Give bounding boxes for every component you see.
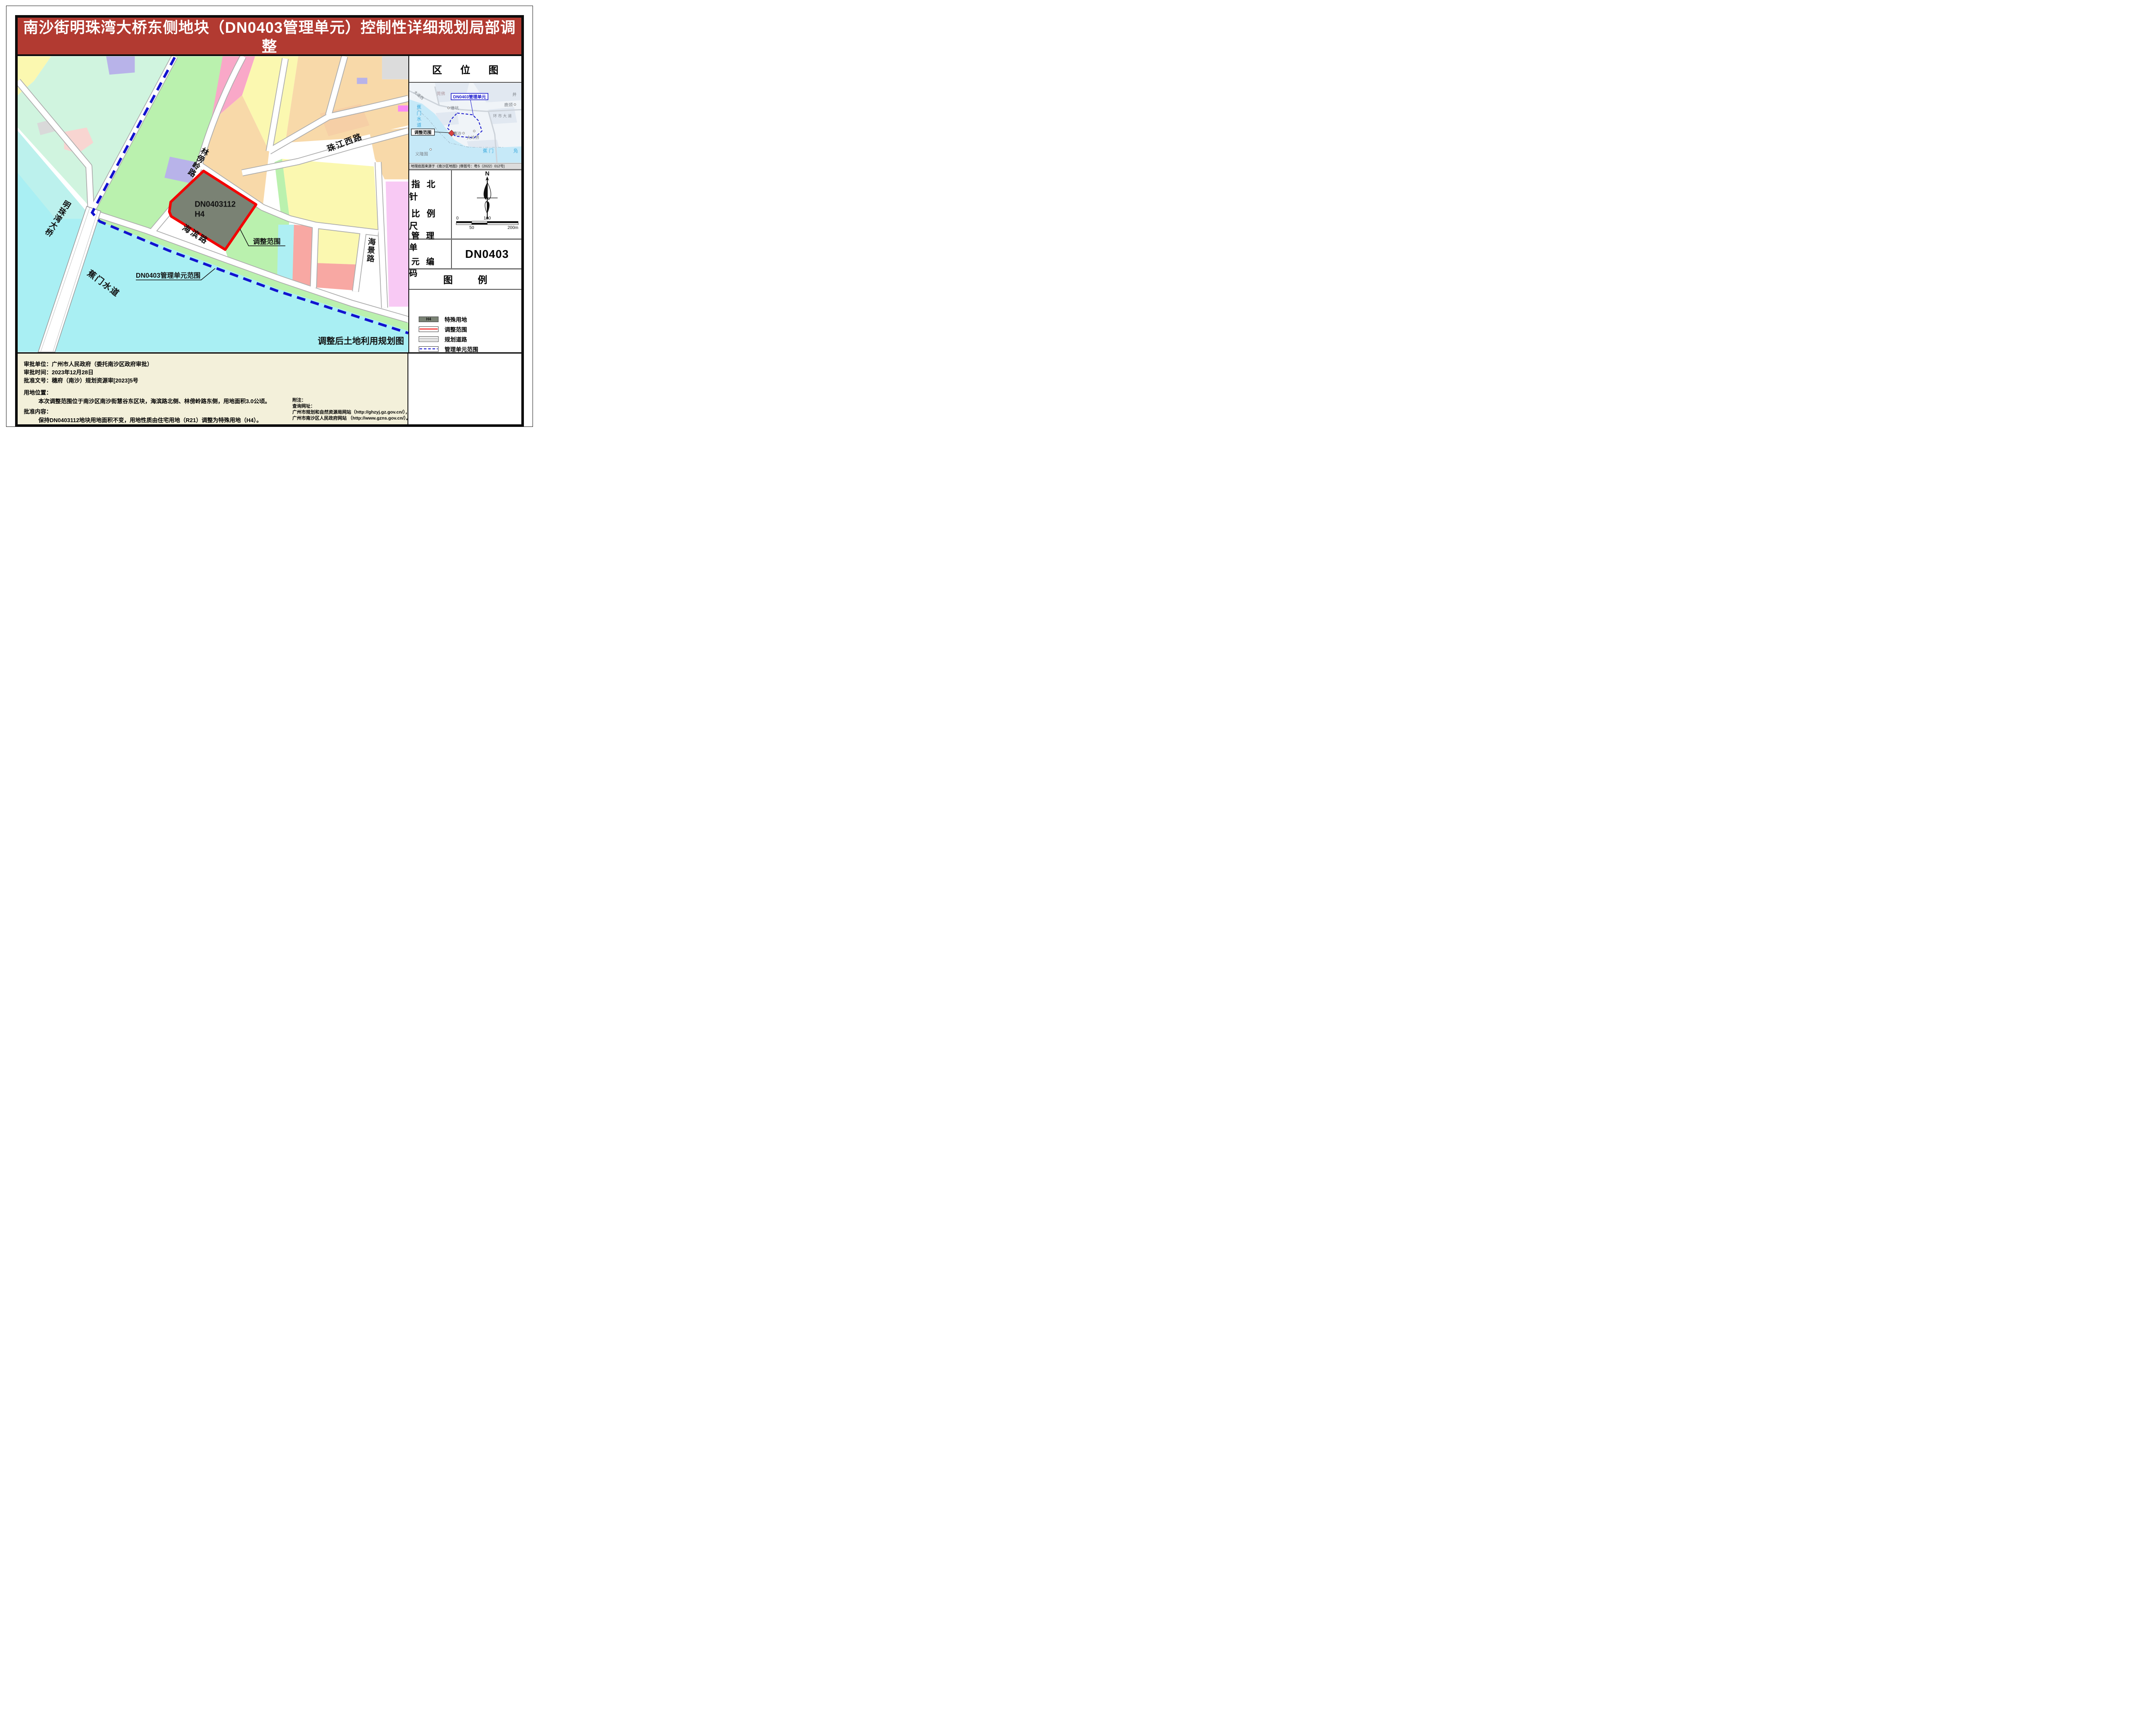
location-title-line: 用地位置： (24, 388, 52, 396)
compass-scale-header: 指 北 针 比 例 尺 (409, 170, 452, 238)
notes-band: 审批单位：广州市人民政府（委托南沙区政府审批） 审批时间：2023年12月28日… (18, 352, 521, 424)
scale-bar: 0 100 50 200m (456, 216, 518, 230)
notes-url-title-line: 查询网址： (292, 403, 315, 409)
legend-label-adjust-scope: 调整范围 (445, 325, 467, 333)
compass-scale-body: N 0 100 50 (453, 170, 521, 238)
place-lujing: 鹿颈 (504, 102, 513, 107)
scale-50: 50 (469, 226, 474, 230)
unit-code-header: 管 理 单 元 编 码 (409, 240, 452, 268)
place-jiaomen: 蕉 门 (483, 147, 494, 154)
unit-scope-label: DN0403管理单元范围 (136, 271, 201, 279)
notes-title-line: 附注： (292, 397, 306, 403)
approval-notes-panel: 审批单位：广州市人民政府（委托南沙区政府审批） 审批时间：2023年12月28日… (18, 354, 408, 424)
mini-unit-label: DN0403管理单元 (453, 94, 486, 100)
legend-item-adjust-scope: 调整范围 (419, 326, 467, 332)
notes-url1-line: 广州市规划和自然资源局网站（http://ghzyj.gz.gov.cn/）， (292, 409, 410, 415)
content-body-line: 保持DN0403112地块用地面积不变，用地性质由住宅用地（R21）调整为特殊用… (38, 416, 262, 424)
parcel-use-label: H4 (194, 210, 204, 218)
compass-header-line1: 指 北 针 (409, 177, 451, 202)
mini-adjust-label: 调整范围 (414, 129, 432, 135)
legend-label-planned-road: 规划道路 (445, 335, 467, 343)
legend-title: 图 例 (409, 268, 521, 289)
road-label-haijing: 海景路 (366, 237, 376, 263)
compass-header-line2: 比 例 尺 (409, 207, 451, 232)
notes-empty-cell (409, 354, 521, 424)
compass-scale-section: 指 北 针 比 例 尺 N (409, 169, 521, 238)
location-map-source: 地理底图来源于《南沙区地图》[审图号：粤S（2022）012号] (409, 163, 521, 169)
place-nansha: 南沙 (453, 131, 461, 136)
location-map-title: 区 位 图 (409, 56, 521, 83)
scale-0: 0 (456, 216, 459, 221)
unit-code-section: 管 理 单 元 编 码 DN0403 (409, 238, 521, 268)
place-channel: 蕉门水道 (416, 104, 421, 128)
notes-url2-line: 广州市南沙区人民政府网站 （http://www.gzns.gov.cn/）。 (292, 415, 411, 421)
legend-swatch-h4: H4 (419, 317, 439, 322)
scale-200m: 200m (508, 226, 518, 230)
place-huanshi: 环 市 大 道 (493, 113, 512, 118)
approval-unit-line: 审批单位：广州市人民政府（委托南沙区政府审批） (24, 360, 153, 368)
place-dalingjie: 大岭界 (467, 135, 479, 141)
legend: H4 特殊用地 调整范围 规划道路 管理单元范围 (409, 289, 521, 352)
legend-item-unit-scope: 管理单元范围 (419, 345, 478, 352)
content-title-line: 批准内容： (24, 407, 52, 415)
north-label: N (485, 170, 489, 177)
unit-code-value: DN0403 (453, 240, 521, 268)
approval-time-line: 审批时间：2023年12月28日 (24, 368, 94, 376)
north-arrow-icon: N (477, 170, 498, 219)
legend-swatch-adjust-scope (419, 326, 439, 332)
legend-swatch-planned-road (419, 336, 439, 342)
location-map: DN0403管理单元 调整范围 塘坑 鹿颈 南沙 大岭界 义隆围 环 市 大 道… (409, 83, 521, 163)
place-fu: 凫 (513, 147, 518, 154)
sidebar: 区 位 图 (408, 56, 521, 352)
legend-item-planned-road: 规划道路 (419, 335, 467, 342)
approval-doc-line: 批准文号：穗府（南沙）规划资源审[2023]5号 (24, 376, 138, 384)
parcel-code-label: DN0403112 (194, 200, 235, 209)
land-use-map: DN0403112 H4 调整范围 DN0403管理单元范围 调整后土地利用规划… (18, 56, 408, 352)
adjust-scope-label: 调整范围 (253, 238, 281, 246)
notice-page: 南沙街明珠湾大桥东侧地块（DN0403管理单元）控制性详细规划局部调整 批后通告… (0, 0, 539, 432)
place-yilongwei: 义隆围 (415, 151, 428, 157)
legend-swatch-unit-scope (419, 346, 439, 352)
title-banner: 南沙街明珠湾大桥东侧地块（DN0403管理单元）控制性详细规划局部调整 批后通告… (18, 18, 521, 56)
legend-label-unit-scope: 管理单元范围 (445, 345, 478, 353)
page-title-line1: 南沙街明珠湾大桥东侧地块（DN0403管理单元）控制性详细规划局部调整 (18, 19, 521, 56)
scale-100: 100 (484, 216, 491, 221)
place-jing: 井 (512, 91, 517, 97)
place-guanfo: 莞佛 (437, 91, 445, 96)
legend-item-special-land: H4 特殊用地 (419, 316, 467, 323)
location-body-line: 本次调整范围位于南沙区南沙街慧谷东区块，海滨路北侧、林傍岭路东侧，用地面积3.0… (38, 397, 270, 405)
map-caption: 调整后土地利用规划图 (318, 336, 404, 346)
place-tangkeng: 塘坑 (450, 105, 459, 111)
unit-code-header-line1: 管 理 单 (409, 229, 451, 253)
legend-label-special-land: 特殊用地 (445, 315, 467, 323)
